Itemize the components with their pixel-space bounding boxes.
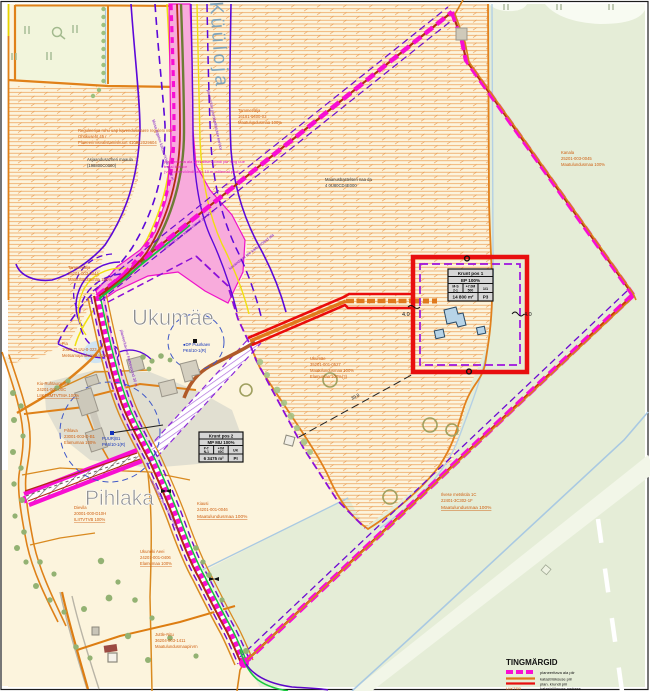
svg-text:Metsamajandusmaa 100%: Metsamajandusmaa 100% — [62, 353, 112, 358]
svg-text:Maatulundusmaa 100%: Maatulundusmaa 100% — [441, 505, 492, 511]
svg-text:4 0U80CD4E000: 4 0U80CD4E000 — [325, 183, 357, 188]
svg-text:24201-001-0046: 24201-001-0046 — [197, 507, 228, 512]
svg-text:Kiu-Ruhtauce tee: Kiu-Ruhtauce tee — [37, 381, 70, 386]
svg-text:Maatulundusmaa 100%: Maatulundusmaa 100% — [238, 120, 282, 125]
svg-text:20001-000-D10H: 20001-000-D10H — [74, 511, 106, 516]
svg-text:Kiausi: Kiausi — [197, 501, 208, 506]
svg-text:MP MU 100%: MP MU 100% — [207, 440, 234, 445]
svg-text:Fia: Fia — [62, 341, 68, 346]
svg-text:Planeerimisvalistamiskuurt 410: Planeerimisvalistamiskuurt 410852029604 — [78, 140, 157, 145]
svg-text:Asjaandusazheri maaula: Asjaandusazheri maaula — [87, 157, 134, 162]
svg-text:14 800 m²: 14 800 m² — [453, 294, 474, 299]
svg-text:1/1: 1/1 — [483, 287, 488, 291]
svg-text:(veekaitsevööndi laius 10 m mõ: (veekaitsevööndi laius 10 m mõlemal pool… — [164, 169, 240, 174]
svg-text:PI: PI — [234, 456, 238, 461]
svg-text:Ukumäe: Ukumäe — [310, 356, 326, 361]
svg-text:●DP Puurkaev: ●DP Puurkaev — [183, 342, 211, 347]
svg-text:4.0: 4.0 — [402, 312, 410, 318]
svg-text:(198800C0000): (198800C0000) — [87, 163, 117, 168]
svg-text:22401-3C302-1F: 22401-3C302-1F — [441, 498, 473, 503]
svg-text:35201-001-0527: 35201-001-0527 — [310, 362, 341, 367]
svg-text:Maatulundusmaa 100%: Maatulundusmaa 100% — [310, 368, 354, 373]
svg-text:Ohukuseht 45 r: Ohukuseht 45 r — [78, 134, 107, 139]
svg-text:PK6/10-1(R): PK6/10-1(R) — [102, 442, 126, 447]
svg-text:Pihlaka: Pihlaka — [85, 487, 154, 510]
svg-text:24201-001-00C: 24201-001-00C — [37, 387, 66, 392]
svg-text:EP 100%: EP 100% — [461, 278, 480, 283]
svg-text:ILIITVTVB 100%: ILIITVTVB 100% — [74, 517, 105, 522]
svg-text:Elamumaa 100%(?): Elamumaa 100%(?) — [310, 374, 348, 379]
svg-text:10a/5 TLUU-0-323: 10a/5 TLUU-0-323 — [62, 347, 97, 352]
svg-text:UK: UK — [233, 449, 239, 453]
svg-text:PK6/10-1(R): PK6/10-1(R) — [183, 348, 207, 353]
svg-text:60C: 60C — [218, 450, 225, 454]
svg-text:Maanusbastelseri naa da: Maanusbastelseri naa da — [325, 177, 372, 182]
svg-text:Kanala: Kanala — [561, 150, 575, 155]
svg-text:500: 500 — [468, 288, 474, 292]
svg-text:6 3475 m²: 6 3475 m² — [204, 456, 225, 461]
svg-text:LIIKTSMTVTMA 100%: LIIKTSMTVTMA 100% — [37, 393, 79, 398]
svg-text:planeeritava ala piir: planeeritava ala piir — [540, 670, 575, 675]
svg-text:25201-003-0045: 25201-003-0045 — [561, 156, 592, 161]
svg-text:Ukumäe: Ukumäe — [132, 305, 214, 330]
svg-text:Maatulundusmaa 100%: Maatulundusmaa 100% — [68, 277, 112, 282]
svg-text:16181-0400-03: 16181-0400-03 — [238, 114, 267, 119]
svg-text:Krunt pos 1: Krunt pos 1 — [458, 271, 484, 276]
svg-text:P3: P3 — [483, 294, 489, 299]
svg-text:36204-003-1411: 36204-003-1411 — [155, 638, 186, 643]
svg-text:Maatulundusmaa 100%: Maatulundusmaa 100% — [561, 162, 605, 167]
svg-text:katastriüksuse aadress: katastriüksuse aadress — [540, 686, 581, 691]
svg-text:Elamumaa 100%: Elamumaa 100% — [140, 561, 172, 566]
svg-text:4.0: 4.0 — [524, 312, 532, 318]
svg-text:Ukuneki Aeei: Ukuneki Aeei — [140, 549, 165, 554]
svg-text:Krunt pos 2: Krunt pos 2 — [209, 433, 234, 438]
svg-text:Tammevälja: Tammevälja — [238, 108, 261, 113]
svg-text:Pihlava: Pihlava — [64, 428, 78, 433]
svg-text:Maatulundusmaa 100%: Maatulundusmaa 100% — [197, 514, 248, 520]
svg-text:24201-001-0406: 24201-001-0406 — [140, 555, 171, 560]
svg-text:LIIKTSB: LIIKTSB — [506, 686, 521, 691]
svg-text:Ilvese metsküla 1C: Ilvese metsküla 1C — [441, 492, 476, 497]
svg-text:Dievila: Dievila — [74, 505, 87, 510]
svg-text:Tammevälja: Tammevälja — [68, 265, 91, 270]
svg-text:23001-003-D-B1: 23001-003-D-B1 — [64, 434, 96, 439]
svg-text:2-1: 2-1 — [453, 288, 458, 292]
svg-text:TINGMÄRGID: TINGMÄRGID — [506, 658, 558, 667]
svg-text:N-1: N-1 — [204, 450, 209, 454]
svg-text:Elamumaa 100%: Elamumaa 100% — [64, 440, 96, 445]
svg-text:Maatulundusmaapirvrn: Maatulundusmaapirvrn — [155, 644, 198, 649]
svg-text:25201-003-0044: 25201-003-0044 — [68, 271, 99, 276]
svg-text:PUUR(B1: PUUR(B1 — [102, 436, 121, 441]
svg-text:Juttle-Nitu: Juttle-Nitu — [155, 632, 175, 637]
